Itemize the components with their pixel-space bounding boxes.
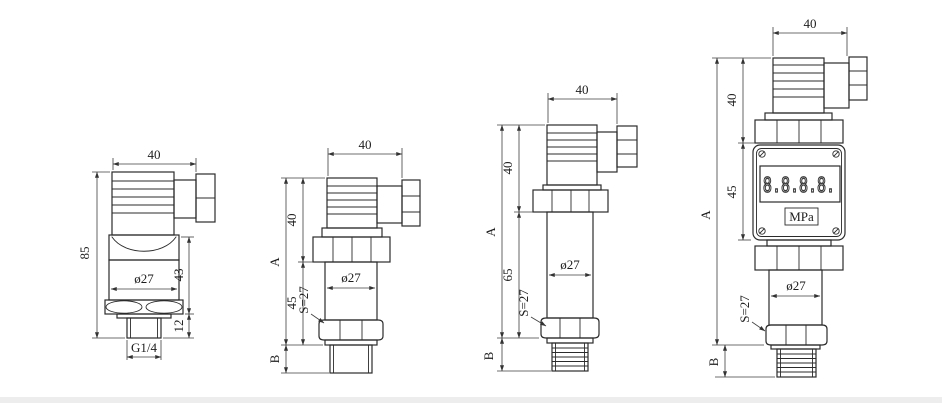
dim-hex-across-flats-label: S=27	[737, 295, 752, 323]
dim-total-height-label: A	[698, 210, 713, 220]
bottom-edge-shadow	[0, 397, 942, 403]
dim-total-height-label: A	[267, 257, 282, 267]
dim-body-diameter-label: ø27	[560, 257, 580, 272]
dim-hex-across-flats-label: S=27	[296, 286, 311, 314]
dim-top-width-label: 40	[804, 16, 817, 31]
dim-body-diameter-label: ø27	[341, 270, 361, 285]
technical-drawing: 40 85 43 12 ø27 G1/4	[0, 0, 942, 403]
dim-thread-spec-label: G1/4	[131, 340, 158, 355]
dim-head-height-label: 40	[724, 94, 739, 107]
dim-head-height-label: 40	[284, 214, 299, 227]
dim-thread-spec: G1/4	[127, 340, 161, 360]
dim-top-width-label: 40	[359, 137, 372, 152]
drawing-canvas: 40 85 43 12 ø27 G1/4	[0, 0, 942, 403]
dim-top-width-label: 40	[148, 147, 161, 162]
dim-hex-across-flats-label: S=27	[516, 289, 531, 317]
dim-head-height-label: 40	[500, 162, 515, 175]
dim-top-width-label: 40	[576, 82, 589, 97]
dim-total-height-label: A	[483, 227, 498, 237]
dim-thread-length-label: B	[706, 357, 721, 366]
dim-body-diameter-label: ø27	[786, 278, 806, 293]
dim-thread-length-label: B	[267, 354, 282, 363]
dim-body-diameter-label: ø27	[134, 271, 154, 286]
unit-label: MPa	[789, 209, 814, 224]
dim-thread-length-label: 12	[171, 320, 186, 333]
dim-thread-length-label: B	[481, 351, 496, 360]
lcd-digits: 8.8.8.8.	[763, 174, 835, 198]
dim-body-height-label: 65	[500, 269, 515, 282]
dim-display-height-label: 45	[724, 186, 739, 199]
dim-total-height-label: 85	[77, 247, 92, 260]
dim-body-height-label: 43	[171, 269, 186, 282]
